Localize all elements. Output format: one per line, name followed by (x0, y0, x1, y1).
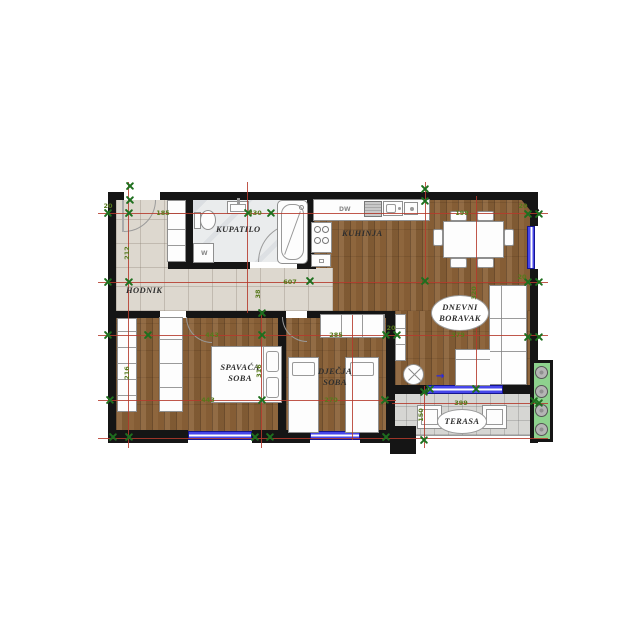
cabinet-handle (319, 259, 324, 263)
dimension-line-v (247, 182, 248, 313)
dimension-line-v (424, 386, 425, 448)
dining-chair (450, 258, 467, 268)
bathtub-faucet (299, 205, 304, 210)
entry-door-leaf (122, 200, 124, 232)
stove (311, 222, 332, 253)
terrace-sliding-door (427, 385, 503, 394)
planter-plant (535, 385, 548, 398)
wall-bathroom-bottom-left (168, 262, 250, 269)
dimension-line-h (392, 403, 548, 404)
room-label-kuhinja: KUHINJA (342, 228, 383, 239)
bedroom-shelf (117, 318, 137, 412)
room-label-line: DNEVNI (442, 302, 477, 313)
room-label-line: BORAVAK (439, 313, 481, 324)
room-label-djecja-soba: DJEČJA SOBA (304, 366, 366, 387)
dining-table (443, 221, 504, 258)
living-shelf (395, 314, 406, 361)
wall-right-upper (530, 192, 538, 226)
room-label-line: SPAVAĆA (206, 362, 274, 373)
dining-chair (477, 258, 494, 268)
kitchen-sink-bowl (386, 204, 396, 213)
dimension-line-h (98, 335, 548, 336)
terrace-table-top (486, 409, 503, 425)
wall-bottom-bedroom (108, 430, 188, 443)
bathtub (277, 200, 308, 264)
planter-plant (535, 404, 548, 417)
dining-chair (433, 229, 443, 246)
dimension-line-v (425, 182, 426, 282)
room-label-kupatilo: KUPATILO (216, 224, 261, 235)
dimension-line-h (98, 213, 548, 214)
washing-machine-label: W (201, 251, 208, 257)
hall-wardrobe (167, 200, 186, 262)
kitchen-base-cabinet (311, 254, 331, 267)
sink-faucet (237, 198, 240, 204)
floor-plan-canvas: → W DW (0, 0, 639, 644)
dimension-line-v (128, 182, 129, 448)
appliance-knob (410, 207, 414, 211)
wall-living-terrace-right (502, 385, 530, 394)
wall-hall-bedrooms-1 (116, 311, 160, 318)
room-label-dnevni-boravak: DNEVNI BORAVAK (431, 295, 489, 331)
dimension-line-h (98, 282, 548, 283)
room-label-terasa: TERASA (437, 409, 487, 434)
burner (314, 226, 321, 233)
planter-plant (535, 423, 548, 436)
burner (322, 237, 329, 244)
bedroom-wardrobe (159, 317, 183, 412)
plant-pot (403, 364, 424, 385)
room-label-hodnik: HODNIK (126, 285, 162, 296)
wall-kids-living (386, 311, 395, 438)
planter-plant (535, 366, 548, 379)
survey-marker-icon (126, 182, 135, 191)
dimension-line-v (476, 196, 477, 390)
sliding-door-arrow-icon: → (436, 371, 444, 382)
room-label-line: SOBA (304, 377, 366, 388)
room-label-line: SOBA (206, 373, 274, 384)
burner (322, 226, 329, 233)
dimension-line-h (98, 438, 548, 439)
living-window-right (527, 226, 535, 269)
burner (314, 237, 321, 244)
sofa-horizontal-section (455, 349, 490, 386)
room-label-line: DJEČJA (304, 366, 366, 377)
sink-basin (230, 204, 246, 212)
wall-bathroom-left (186, 200, 193, 268)
washing-machine: W (193, 243, 214, 263)
dining-chair (504, 229, 514, 246)
kitchen-sink-drain (398, 207, 401, 210)
room-label-line: TERASA (445, 416, 480, 427)
room-label-spavaca-soba: SPAVAĆA SOBA (206, 362, 274, 383)
dishwasher (364, 201, 382, 217)
wall-left (108, 192, 116, 443)
